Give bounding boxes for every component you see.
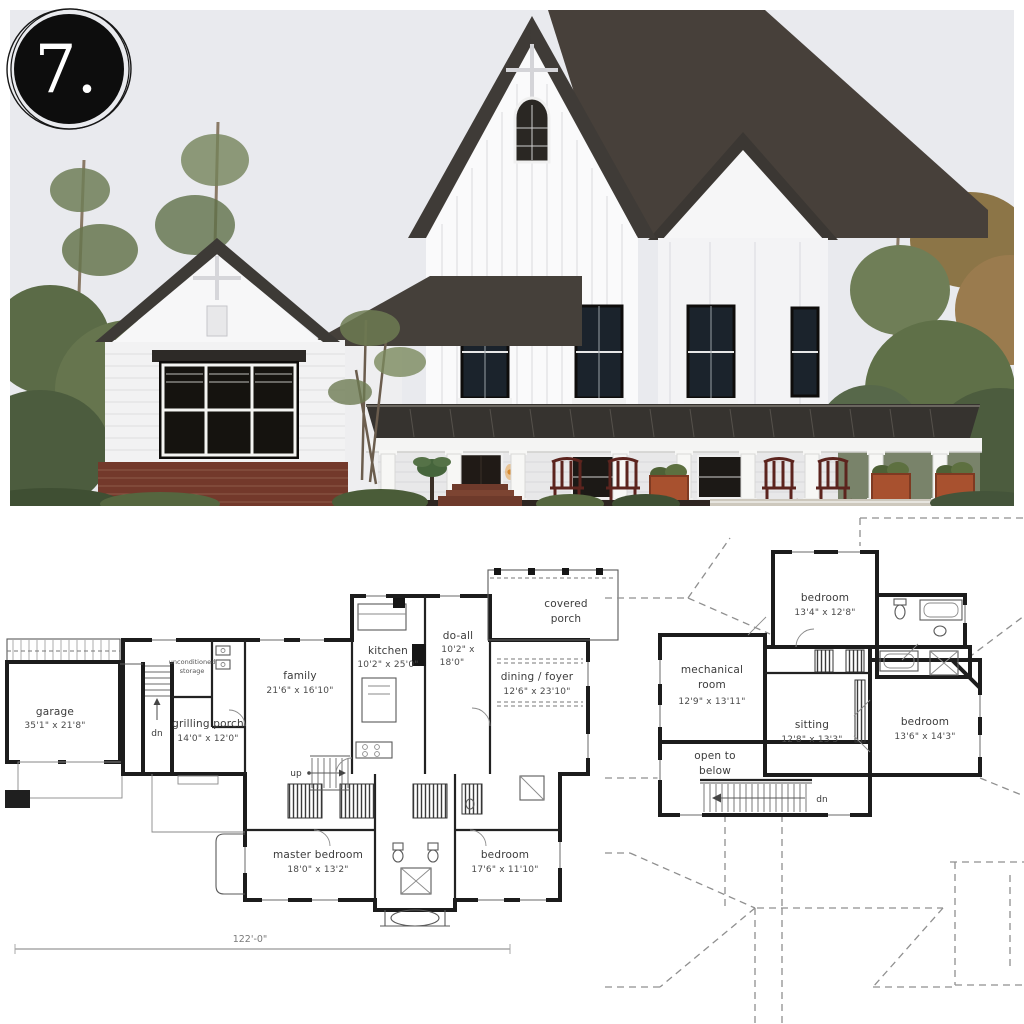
master-bay-window (216, 834, 245, 894)
second-floor-plan: dn bedroom 13'4" x 12'8" mechanical room… (600, 510, 1024, 1024)
svg-text:bedroom: bedroom (901, 716, 949, 728)
bay-window (160, 362, 298, 458)
svg-text:below: below (699, 765, 731, 777)
svg-text:12'9" x 13'11": 12'9" x 13'11" (678, 697, 745, 707)
svg-text:open to: open to (694, 750, 735, 762)
trellis-symbol (7, 639, 120, 663)
svg-text:kitchen: kitchen (368, 645, 408, 657)
porch (366, 404, 982, 506)
svg-text:17'6" x 11'10": 17'6" x 11'10" (471, 865, 538, 875)
porch-step-symbol (152, 774, 245, 832)
svg-text:unconditioned: unconditioned (169, 658, 215, 666)
svg-text:family: family (283, 670, 317, 682)
svg-text:18'0" x 13'2": 18'0" x 13'2" (287, 865, 348, 875)
stairs-dn-label: dn (816, 795, 827, 805)
house-photo (10, 10, 1014, 506)
bath-fixtures (880, 599, 962, 675)
stairs-dn-symbol: dn (700, 780, 828, 812)
svg-text:bedroom: bedroom (481, 849, 529, 861)
svg-text:13'6" x 14'3": 13'6" x 14'3" (894, 732, 955, 742)
stairs-up-label: up (290, 769, 302, 779)
closet-symbols (288, 784, 482, 818)
item-number-badge: 7. (2, 2, 140, 140)
bay-roof (152, 350, 306, 362)
first-floor-plan: dn (0, 512, 628, 1024)
overall-dimension: 122'-0" (15, 934, 510, 954)
porch-fascia (366, 438, 982, 452)
svg-text:room: room (698, 679, 726, 691)
svg-text:21'6" x 16'10": 21'6" x 16'10" (266, 686, 333, 696)
porch-window-2 (698, 456, 742, 498)
kitchen-fixtures (356, 598, 426, 758)
badge-number: 7. (35, 31, 98, 108)
oval-porch-symbol (380, 910, 450, 926)
svg-text:14'0" x 12'0": 14'0" x 12'0" (177, 734, 238, 744)
arched-window (515, 98, 549, 162)
svg-text:covered: covered (544, 598, 587, 610)
gable-vent (207, 306, 227, 336)
svg-text:sitting: sitting (795, 719, 829, 731)
svg-text:12'6" x 23'10": 12'6" x 23'10" (503, 687, 570, 697)
breezeway-stairs-symbol: dn (120, 662, 172, 774)
svg-text:10'2" x: 10'2" x (441, 645, 475, 655)
svg-text:122'-0": 122'-0" (233, 934, 268, 945)
svg-text:dining / foyer: dining / foyer (501, 671, 574, 683)
svg-text:bedroom: bedroom (801, 592, 849, 604)
pinned-collage: 7. (0, 0, 1024, 1024)
svg-text:storage: storage (180, 667, 205, 675)
svg-text:garage: garage (36, 706, 74, 718)
room-labels: bedroom 13'4" x 12'8" mechanical room 12… (678, 592, 955, 777)
bath-fixtures-left (216, 646, 230, 669)
svg-text:mechanical: mechanical (681, 664, 743, 676)
svg-text:35'1" x 21'8": 35'1" x 21'8" (24, 721, 85, 731)
svg-text:do-all: do-all (443, 630, 474, 642)
svg-text:porch: porch (551, 613, 582, 625)
svg-text:10'2" x 25'0": 10'2" x 25'0" (357, 660, 418, 670)
stairs-dn-label: dn (151, 729, 162, 739)
door-swings (229, 708, 490, 846)
svg-text:grilling porch: grilling porch (172, 718, 244, 730)
svg-text:master bedroom: master bedroom (273, 849, 363, 861)
stoop-block (5, 790, 30, 808)
svg-text:13'4" x 12'8": 13'4" x 12'8" (794, 608, 855, 618)
svg-text:18'0": 18'0" (440, 658, 465, 668)
driveway-apron (18, 762, 122, 798)
svg-text:12'8" x 13'3": 12'8" x 13'3" (781, 735, 842, 745)
